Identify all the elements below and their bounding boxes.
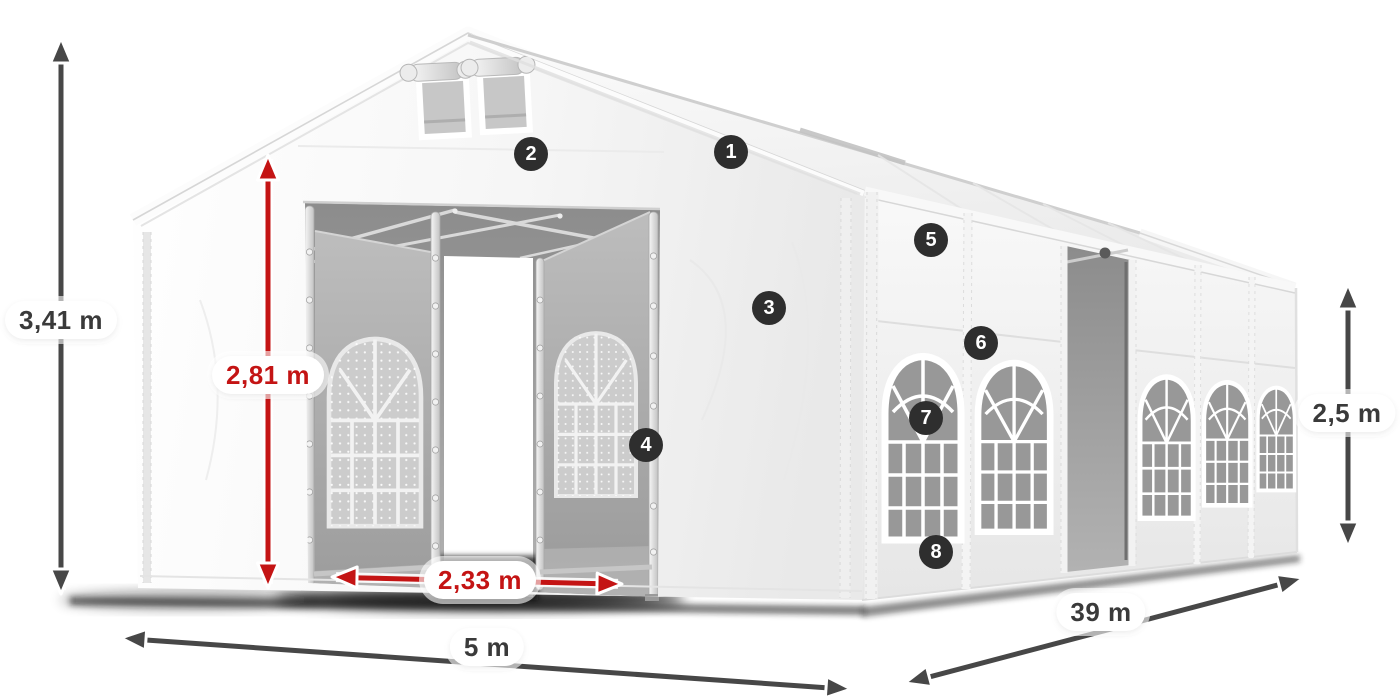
side-window-1 <box>885 357 961 541</box>
front-entrance-interior <box>301 203 660 601</box>
callout-marker-1: 1 <box>714 135 748 169</box>
side-window-3 <box>1140 377 1193 518</box>
open-passage-gap <box>444 256 533 597</box>
callout-marker-7: 7 <box>909 401 943 435</box>
tent-dimension-illustration: 3,41 m 2,81 m 2,33 m 5 m 39 m 2,5 m 1 2 … <box>0 0 1400 700</box>
dimension-label-entrance-width: 2,33 m <box>424 561 536 599</box>
door-leaf-window <box>329 339 421 526</box>
side-window-2 <box>978 363 1050 532</box>
front-door-leaf-left <box>315 231 436 571</box>
callout-marker-8: 8 <box>919 535 953 569</box>
door-leaf-window <box>556 333 636 496</box>
tent-drawing <box>0 0 1400 700</box>
side-door-opening <box>1061 246 1136 573</box>
side-window-4 <box>1204 382 1250 505</box>
dimension-label-side-height: 2,5 m <box>1299 394 1396 432</box>
front-door-leaf-right <box>540 212 653 549</box>
dimension-label-total-height: 3,41 m <box>5 301 117 339</box>
callout-marker-4: 4 <box>629 428 663 462</box>
callout-marker-2: 2 <box>514 137 548 171</box>
callout-marker-5: 5 <box>914 223 948 257</box>
callout-marker-6: 6 <box>964 326 998 360</box>
corner-strap-right <box>845 198 846 598</box>
callout-marker-3: 3 <box>752 291 786 325</box>
dimension-label-side-length: 39 m <box>1056 593 1145 631</box>
side-window-5 <box>1258 388 1294 491</box>
dimension-label-entrance-height: 2,81 m <box>212 356 324 394</box>
dimension-label-gable-width: 5 m <box>450 628 524 666</box>
